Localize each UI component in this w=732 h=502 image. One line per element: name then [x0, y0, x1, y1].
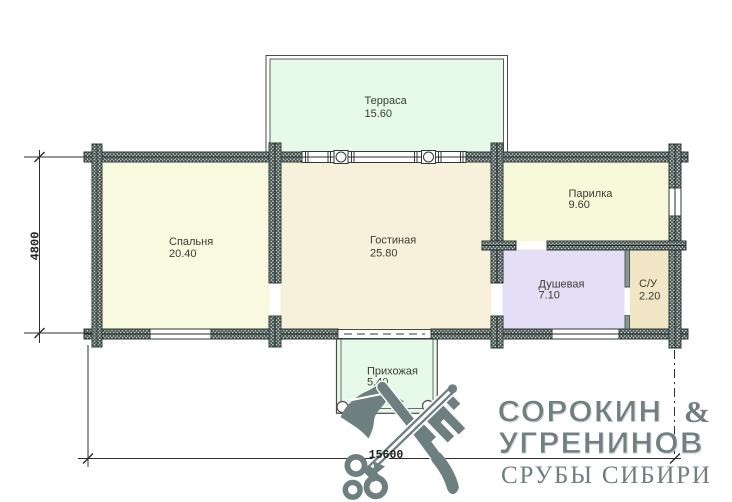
svg-text:15600: 15600 — [369, 449, 404, 462]
svg-text:25.80: 25.80 — [370, 248, 398, 260]
svg-text:Терраса: Терраса — [365, 95, 408, 107]
svg-text:9.60: 9.60 — [569, 199, 590, 211]
svg-text:Спальня: Спальня — [169, 236, 213, 248]
svg-text:СОРОКИН: СОРОКИН — [498, 394, 663, 429]
svg-text:2.20: 2.20 — [639, 291, 660, 303]
svg-text:15.60: 15.60 — [365, 108, 393, 120]
svg-text:Гостиная: Гостиная — [370, 235, 416, 247]
svg-text:4800: 4800 — [29, 232, 43, 261]
svg-text:УГРЕНИНОВ: УГРЕНИНОВ — [499, 425, 704, 460]
svg-text:С/У: С/У — [639, 278, 658, 290]
svg-text:&: & — [684, 394, 710, 429]
svg-text:7.10: 7.10 — [539, 290, 560, 302]
svg-text:СРУБЫ СИБИРИ: СРУБЫ СИБИРИ — [501, 462, 712, 489]
svg-text:20.40: 20.40 — [169, 248, 197, 260]
